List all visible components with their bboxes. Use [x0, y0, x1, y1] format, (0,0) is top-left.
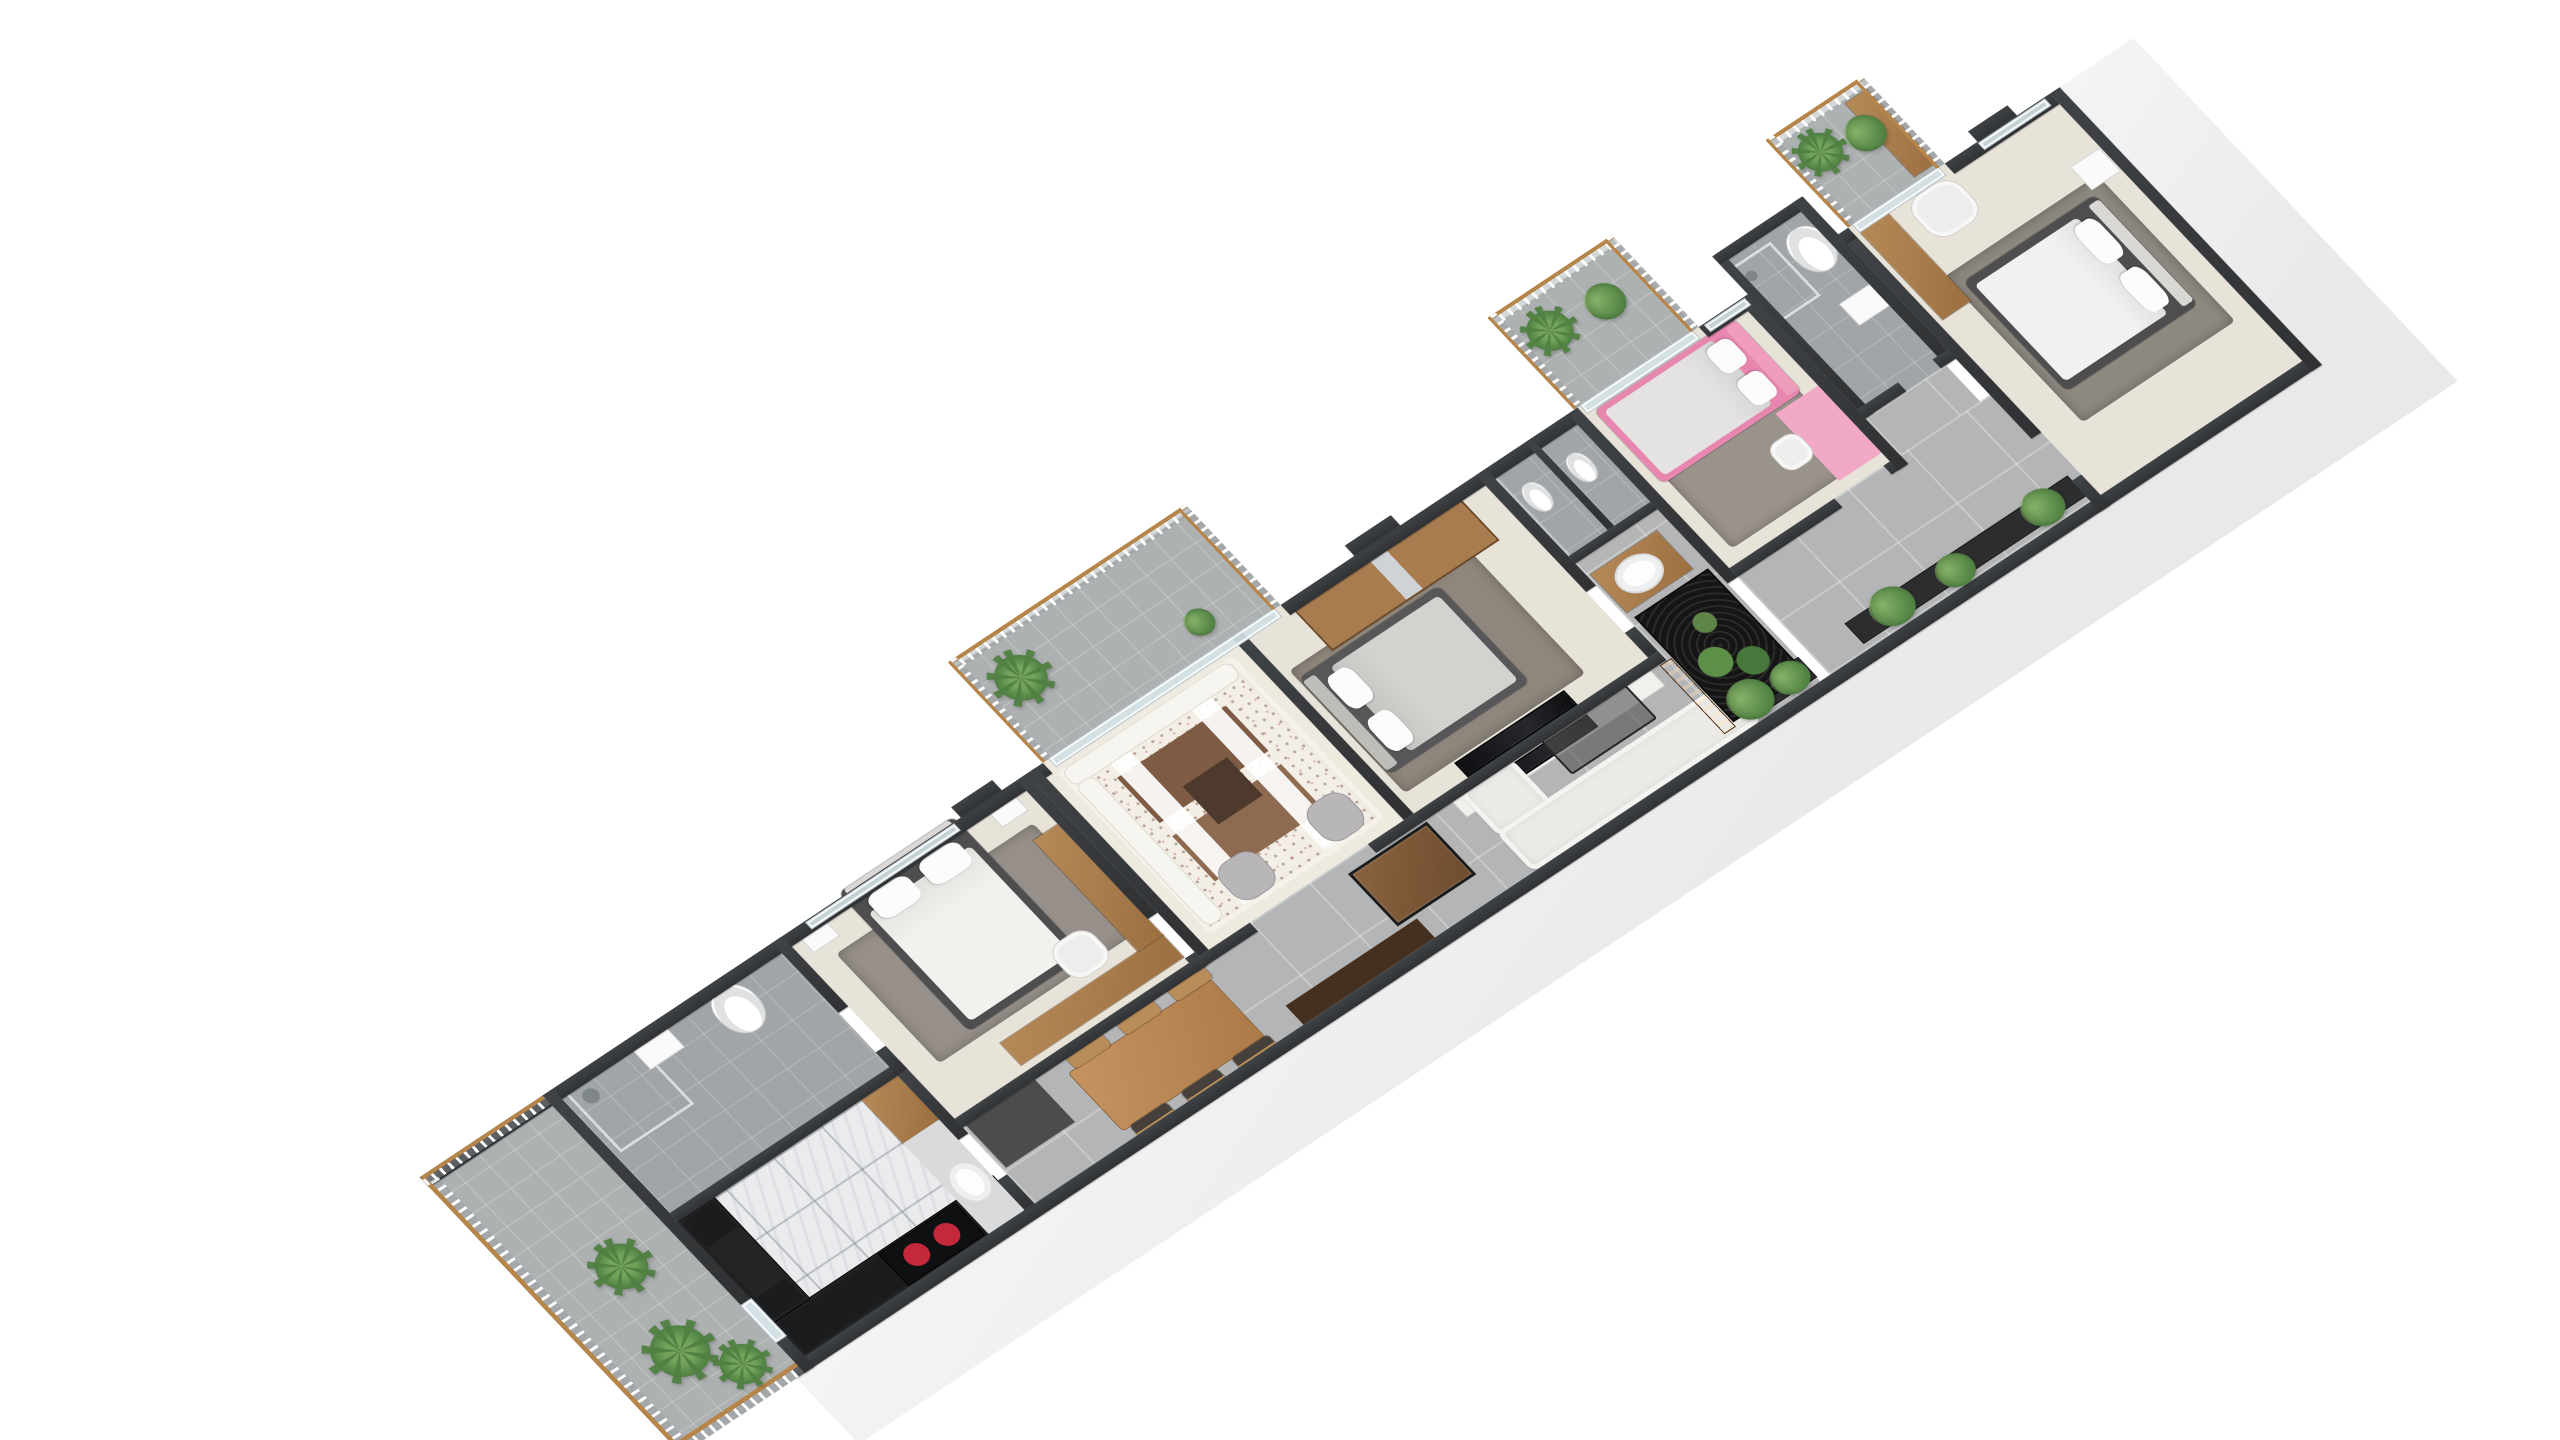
floorplan-canvas [0, 0, 2560, 1440]
apartment-3d-floorplan [323, 0, 2465, 1440]
